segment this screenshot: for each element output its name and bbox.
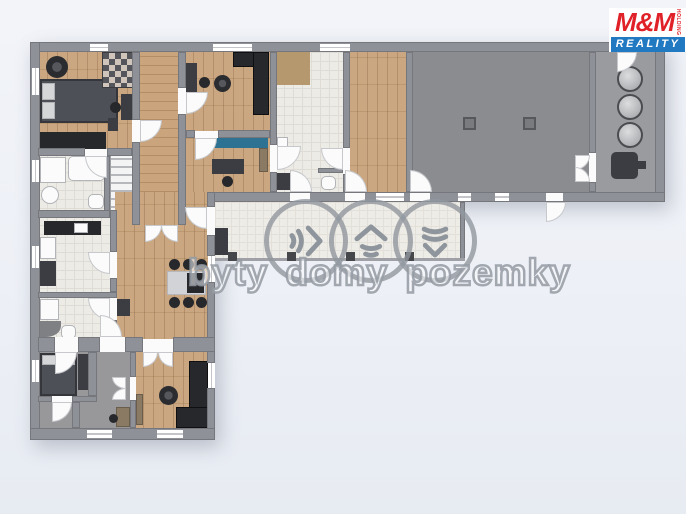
wall-hall-right <box>589 182 596 192</box>
wall-kitchen-right <box>110 278 117 292</box>
window <box>208 363 215 388</box>
tank2 <box>617 94 643 120</box>
desk3 <box>212 159 244 174</box>
desk4 <box>116 407 130 427</box>
sink3 <box>40 299 59 320</box>
wood-room-floor <box>348 52 408 192</box>
boiler-knob <box>637 161 646 169</box>
wall-offices-right <box>270 172 277 192</box>
window <box>213 44 252 51</box>
door-gap <box>195 131 218 138</box>
sofa2-bottom <box>176 407 208 428</box>
bed1-pillow1 <box>42 83 55 100</box>
round-chair1 <box>214 75 231 92</box>
wall-band <box>38 337 55 352</box>
door-gap <box>130 377 136 400</box>
hall2-floor-ext <box>78 400 98 430</box>
dining-chair <box>183 297 194 308</box>
bed1-pillow2 <box>42 102 55 119</box>
wall-kitchen-right <box>110 210 117 252</box>
sideboard <box>40 132 106 149</box>
tank3 <box>617 122 643 148</box>
dining-chair <box>169 297 180 308</box>
door-arc <box>546 202 566 222</box>
wall-right <box>655 42 665 202</box>
wall-offices-right <box>270 52 277 145</box>
window <box>32 160 39 182</box>
boiler <box>611 152 638 179</box>
door-gap <box>546 193 563 201</box>
door-gap <box>178 88 186 114</box>
window <box>32 360 39 382</box>
window <box>157 430 183 438</box>
cabinet1 <box>259 148 268 172</box>
door-gap <box>85 149 107 156</box>
watermark-text: byty domy pozemky <box>188 252 571 294</box>
window <box>32 68 39 95</box>
floor-plan: byty domy pozemky M&M HOLDING REALITY <box>0 0 686 514</box>
wall-corridor-right <box>178 52 186 88</box>
console <box>136 394 143 425</box>
dining-tv <box>117 299 130 316</box>
sofa1-right <box>253 52 269 115</box>
wall-unit <box>108 118 118 131</box>
porch-object <box>215 228 228 255</box>
dining-chair <box>169 259 180 270</box>
armchair <box>46 56 68 78</box>
window <box>87 430 112 438</box>
sofa2-right <box>189 361 208 413</box>
window <box>32 246 39 268</box>
shower1 <box>40 157 66 183</box>
fridge <box>40 237 56 259</box>
door-gap <box>143 339 173 352</box>
wall-band <box>173 337 215 352</box>
mm-reality-logo: M&M HOLDING REALITY <box>609 8 686 52</box>
window <box>495 193 509 201</box>
wall-bottom <box>30 428 215 440</box>
wall-hall2-living <box>130 352 136 377</box>
wall-leftwing-right <box>207 192 215 207</box>
big-hall-floor <box>411 52 591 192</box>
dining-chair <box>196 297 207 308</box>
window <box>90 44 108 51</box>
kitchen-counter <box>44 221 101 235</box>
door-gap <box>55 337 78 352</box>
column1 <box>463 117 476 130</box>
wardrobe1 <box>102 52 134 88</box>
stove <box>40 261 56 286</box>
wall-hall-right <box>589 52 596 153</box>
door-gap <box>110 298 117 320</box>
door-gap <box>110 252 117 278</box>
round-chair2 <box>159 386 178 405</box>
chair2 <box>199 77 210 88</box>
wall-corridor-left <box>132 52 140 120</box>
door-mat <box>276 52 310 85</box>
toilet1 <box>88 194 104 209</box>
chair3 <box>222 176 233 187</box>
chair4 <box>109 414 118 423</box>
wall-offices-divider <box>218 130 270 138</box>
wall-band <box>78 337 100 352</box>
door-gap <box>100 337 125 352</box>
wall-bath1-bottom <box>38 210 110 218</box>
logo-holding-text: HOLDING <box>675 9 681 36</box>
wall-bedroom2-right <box>88 352 97 396</box>
wall-band <box>125 337 143 352</box>
window <box>458 193 471 201</box>
logo-top: M&M HOLDING <box>611 9 685 36</box>
wall-hall2-living <box>130 400 136 428</box>
wall-bedroom2-bottom <box>38 396 52 402</box>
wall-wc-right <box>343 52 350 148</box>
sink1 <box>41 186 59 204</box>
door-gap <box>132 120 140 142</box>
wall-corridor-left <box>132 142 140 225</box>
logo-mm-text: M&M <box>615 9 674 36</box>
kitchen-sink <box>74 223 88 233</box>
wall-offices-divider <box>186 130 195 138</box>
logo-reality-text: REALITY <box>611 37 685 52</box>
chair1 <box>110 102 121 113</box>
wall-bedroom1-bottom <box>107 148 132 156</box>
bench <box>277 173 291 190</box>
window <box>320 44 350 51</box>
column2 <box>523 117 536 130</box>
wall-bedroom1-bottom <box>38 148 85 156</box>
door-gap <box>589 153 596 182</box>
wall-storage-right <box>72 402 80 428</box>
toilet2 <box>321 176 336 190</box>
door-gap <box>207 207 215 235</box>
door-gap <box>270 145 277 172</box>
